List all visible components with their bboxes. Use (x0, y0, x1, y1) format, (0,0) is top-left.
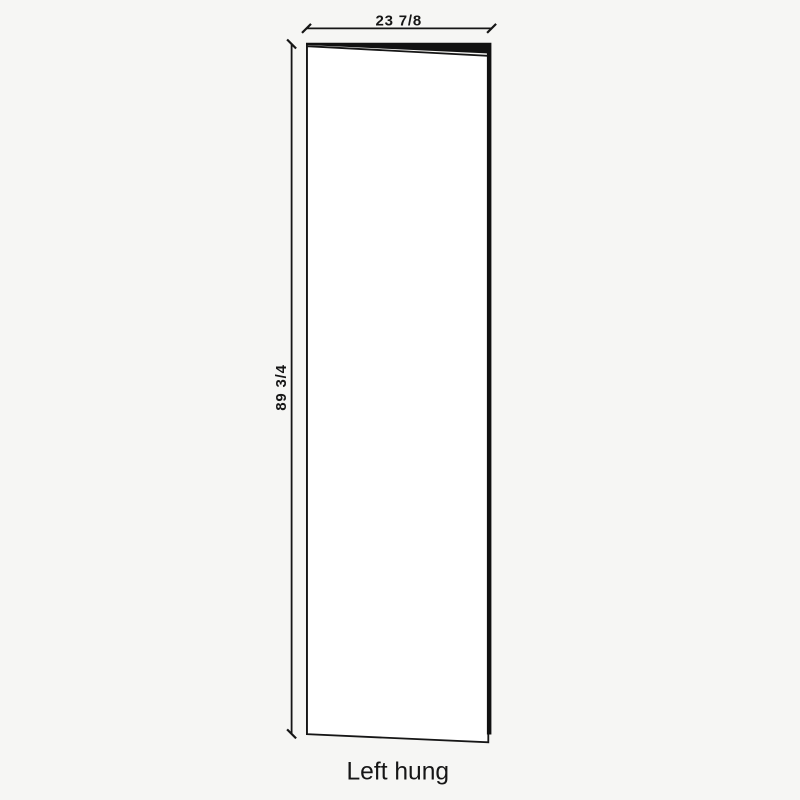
svg-text:89 3/4: 89 3/4 (273, 364, 290, 411)
svg-text:Left hung: Left hung (347, 759, 450, 786)
svg-text:23 7/8: 23 7/8 (376, 13, 423, 30)
